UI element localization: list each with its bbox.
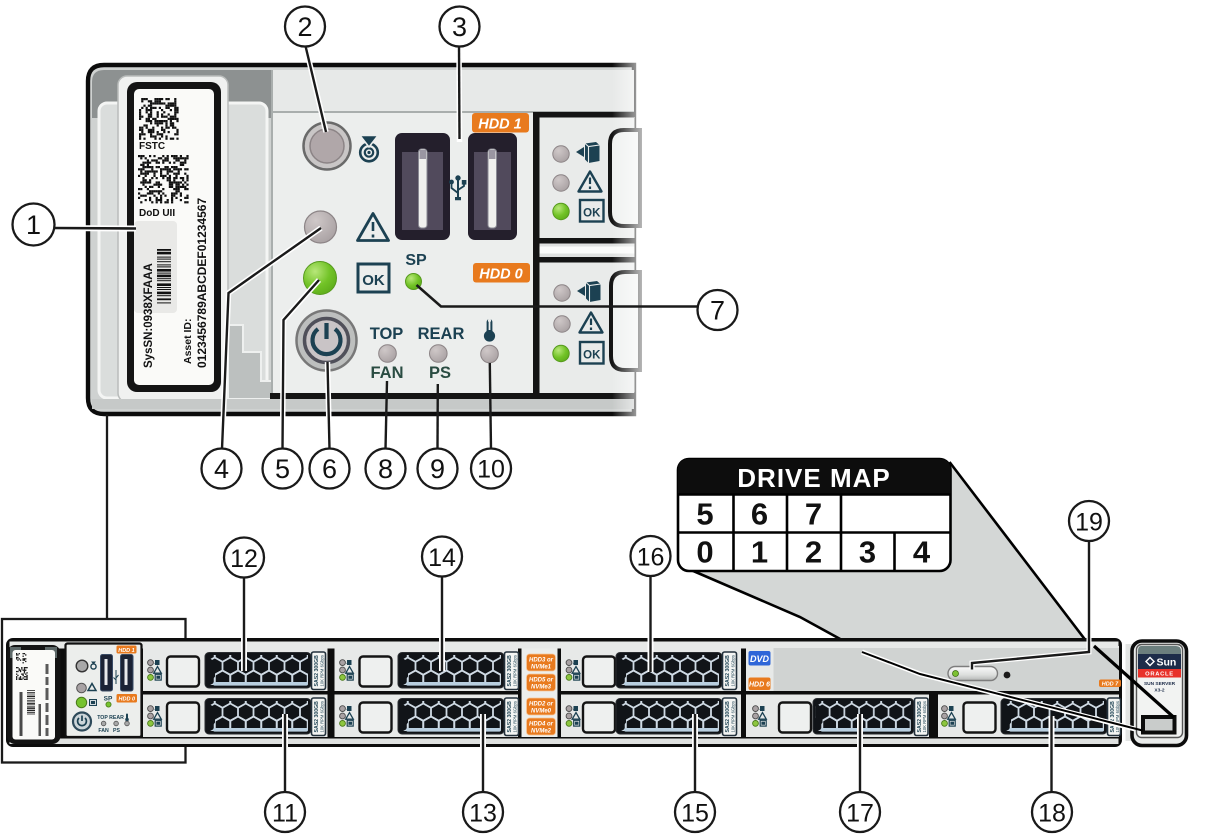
svg-text:OK: OK [583,208,601,220]
svg-text:TOP: TOP [370,325,404,343]
svg-text:DVD: DVD [750,654,770,664]
svg-text:3: 3 [859,535,876,570]
svg-text:FAN: FAN [98,728,109,734]
svg-text:16: 16 [637,544,665,572]
svg-text:SysSN:0938XFAAA: SysSN:0938XFAAA [143,263,155,368]
svg-text:5: 5 [696,497,713,532]
svg-text:HDD 7: HDD 7 [1102,682,1119,688]
svg-text:10K RPM 6Gbps: 10K RPM 6Gbps [922,701,927,732]
svg-text:NVMe0: NVMe0 [531,709,552,715]
svg-text:Sun: Sun [1157,657,1177,669]
svg-text:DoD UII: DoD UII [139,208,175,219]
svg-text:NVMe1: NVMe1 [531,665,552,671]
svg-text:13: 13 [469,800,497,828]
svg-text:Asset ID:: Asset ID: [182,318,194,364]
svg-text:9: 9 [430,454,445,484]
svg-text:SUN SERVER: SUN SERVER [1144,681,1176,687]
svg-text:3: 3 [452,12,467,42]
svg-text:17: 17 [846,800,874,828]
svg-text:2: 2 [805,535,822,570]
svg-text:11: 11 [272,800,298,828]
svg-text:7: 7 [805,497,822,532]
svg-text:15: 15 [681,800,709,828]
svg-text:8: 8 [378,454,393,484]
svg-text:DRIVE MAP: DRIVE MAP [737,463,890,493]
svg-text:NVMe3: NVMe3 [531,685,552,691]
svg-text:10K RPM 6Gbps: 10K RPM 6Gbps [513,655,518,686]
svg-text:OK: OK [583,350,601,362]
svg-text:10K RPM 6Gbps: 10K RPM 6Gbps [513,701,518,732]
svg-text:PS: PS [429,364,451,382]
svg-text:HDD 6: HDD 6 [749,682,770,689]
svg-text:SP: SP [104,696,113,703]
svg-text:4: 4 [214,454,229,484]
svg-text:12: 12 [230,545,258,573]
svg-text:2: 2 [297,12,312,42]
svg-text:19: 19 [1075,509,1103,537]
svg-text:HDD 1: HDD 1 [478,117,522,133]
svg-text:0123456789ABCDEF01234567: 0123456789ABCDEF01234567 [195,198,209,368]
svg-text:TOP: TOP [97,715,108,721]
svg-text:10K RPM 6Gbps: 10K RPM 6Gbps [731,655,736,686]
svg-text:HDD3 or: HDD3 or [529,658,554,664]
svg-text:X3-2: X3-2 [1154,688,1164,694]
svg-text:4: 4 [913,535,931,570]
svg-text:FSTC: FSTC [139,141,165,152]
svg-text:REAR: REAR [418,325,465,343]
svg-text:10: 10 [477,456,505,484]
svg-text:1: 1 [751,535,768,570]
svg-text:ORACLE: ORACLE [1145,672,1174,678]
svg-text:6: 6 [322,454,337,484]
svg-text:HDD 1: HDD 1 [118,648,135,654]
svg-text:HDD5 or: HDD5 or [529,678,554,684]
svg-text:HDD4 or: HDD4 or [529,722,554,728]
svg-text:7: 7 [710,296,725,326]
svg-text:HDD 0: HDD 0 [119,697,136,703]
svg-text:18: 18 [1038,800,1066,828]
svg-text:0: 0 [696,535,713,570]
svg-text:10K RPM 6Gbps: 10K RPM 6Gbps [320,655,325,686]
svg-text:HDD 0: HDD 0 [479,267,523,283]
svg-text:REAR: REAR [109,715,124,721]
svg-text:NVMe2: NVMe2 [531,729,552,735]
svg-text:SP: SP [405,252,427,269]
svg-text:14: 14 [428,544,456,572]
svg-text:5: 5 [275,454,290,484]
svg-text:FAN: FAN [371,364,404,382]
svg-text:1: 1 [26,210,41,240]
svg-text:OK: OK [362,272,385,289]
svg-text:10K RPM 6Gbps: 10K RPM 6Gbps [1115,701,1120,732]
svg-text:10K RPM 6Gbps: 10K RPM 6Gbps [731,701,736,732]
svg-text:6: 6 [751,497,768,532]
svg-text:10K RPM 6Gbps: 10K RPM 6Gbps [320,701,325,732]
svg-text:PS: PS [113,728,120,734]
svg-text:HDD2 or: HDD2 or [529,702,554,708]
